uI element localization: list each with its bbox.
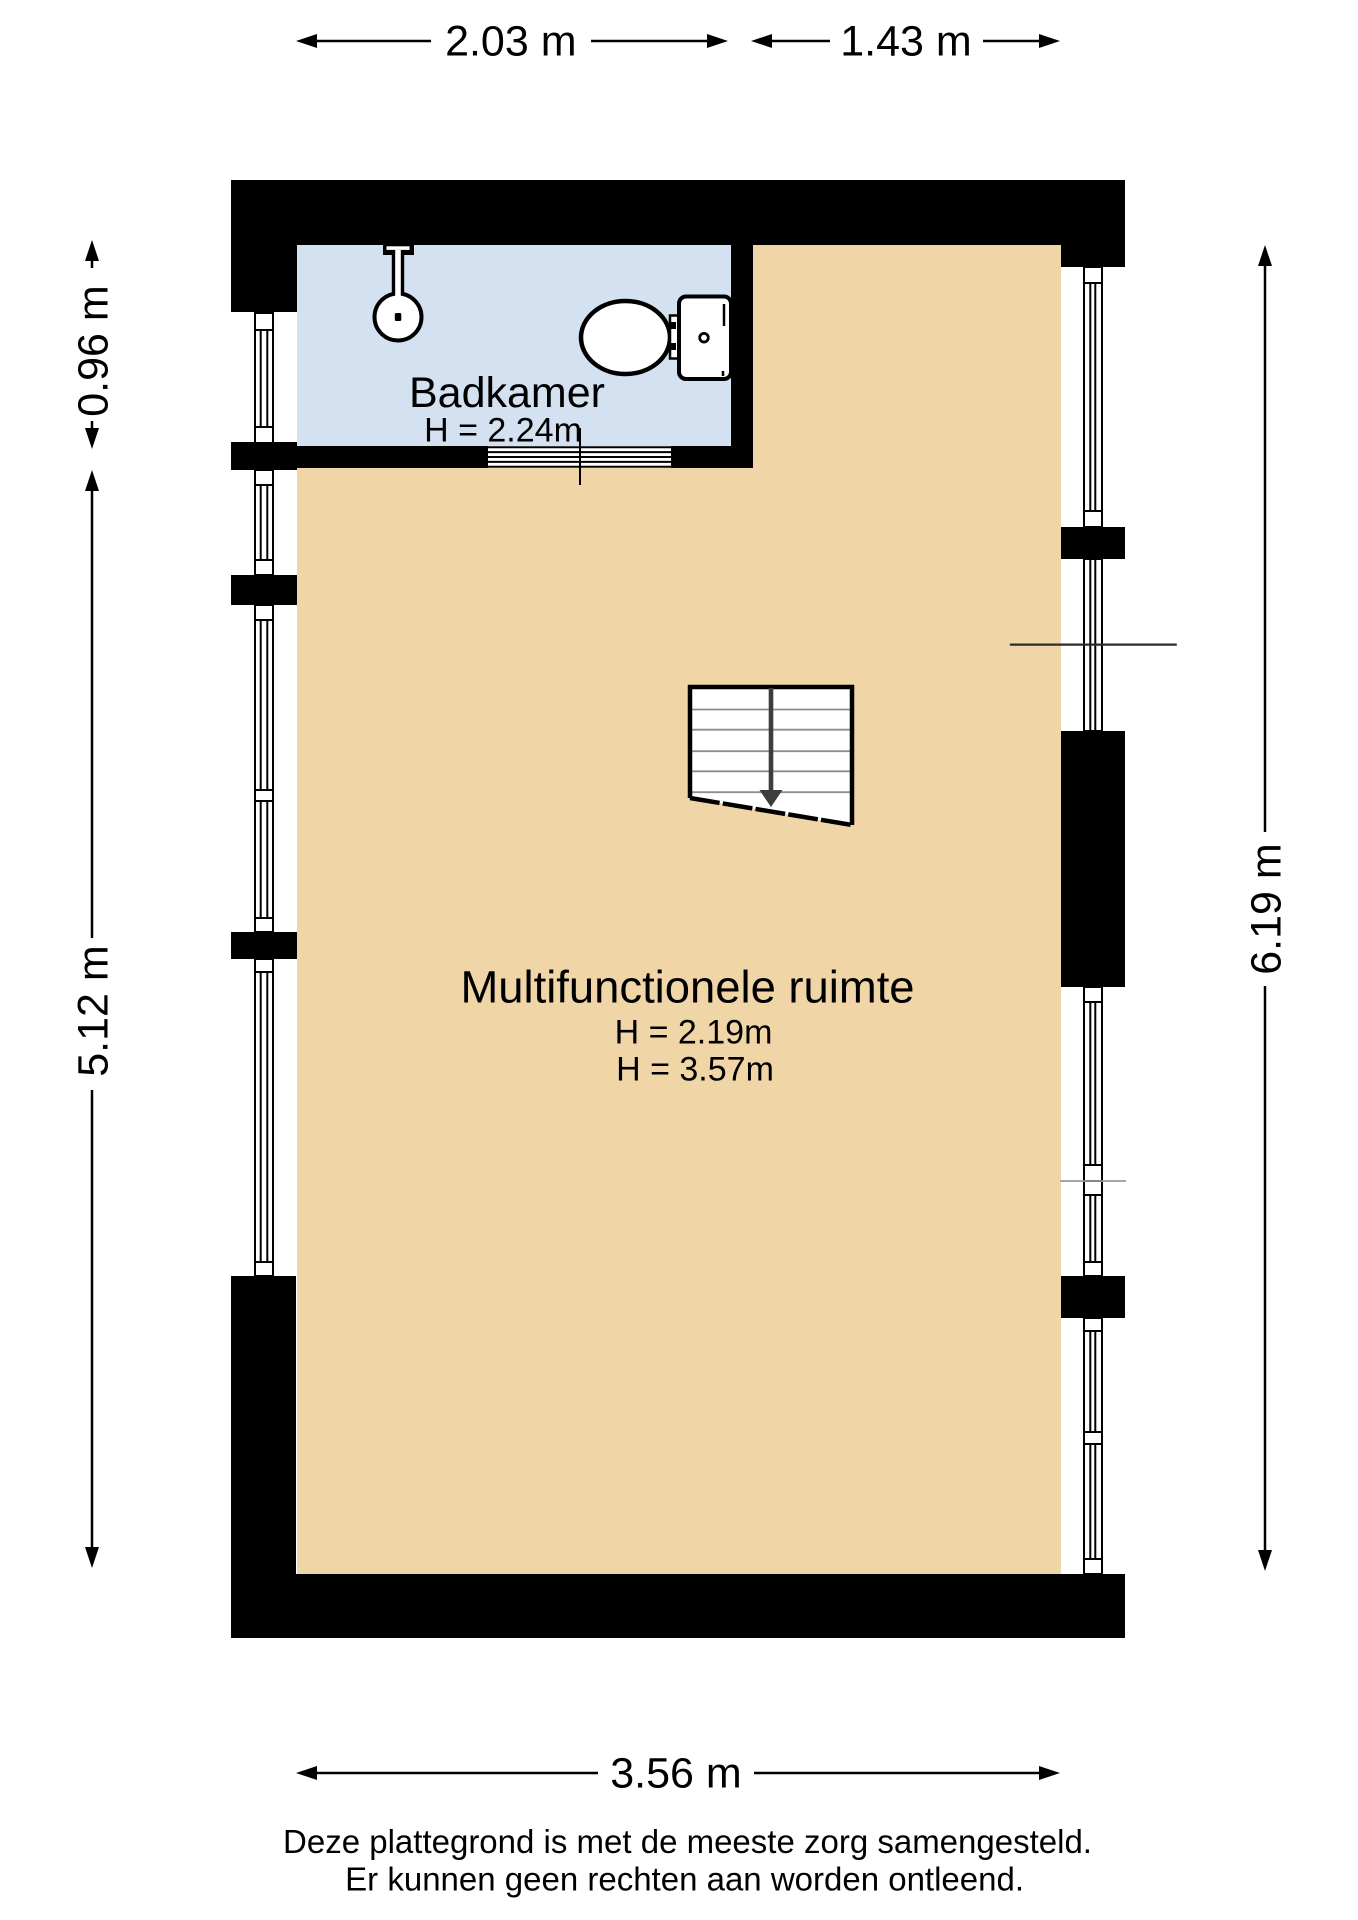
svg-text:6.19 m: 6.19 m [1243, 843, 1291, 974]
svg-text:5.12 m: 5.12 m [70, 945, 118, 1076]
svg-text:Badkamer: Badkamer [409, 369, 605, 417]
svg-text:3.56 m: 3.56 m [610, 1750, 741, 1798]
svg-text:1.43 m: 1.43 m [840, 17, 971, 65]
svg-text:H = 2.24m: H = 2.24m [424, 412, 582, 450]
svg-text:H = 3.57m: H = 3.57m [616, 1050, 774, 1088]
svg-text:Deze plattegrond is met de mee: Deze plattegrond is met de meeste zorg s… [283, 1823, 1092, 1860]
svg-text:0.96 m: 0.96 m [70, 285, 118, 416]
svg-text:Er kunnen geen rechten aan wor: Er kunnen geen rechten aan worden ontlee… [345, 1860, 1024, 1897]
svg-text:Multifunctionele ruimte: Multifunctionele ruimte [460, 962, 914, 1013]
svg-text:H = 2.19m: H = 2.19m [615, 1014, 773, 1052]
svg-text:2.03 m: 2.03 m [445, 17, 576, 65]
